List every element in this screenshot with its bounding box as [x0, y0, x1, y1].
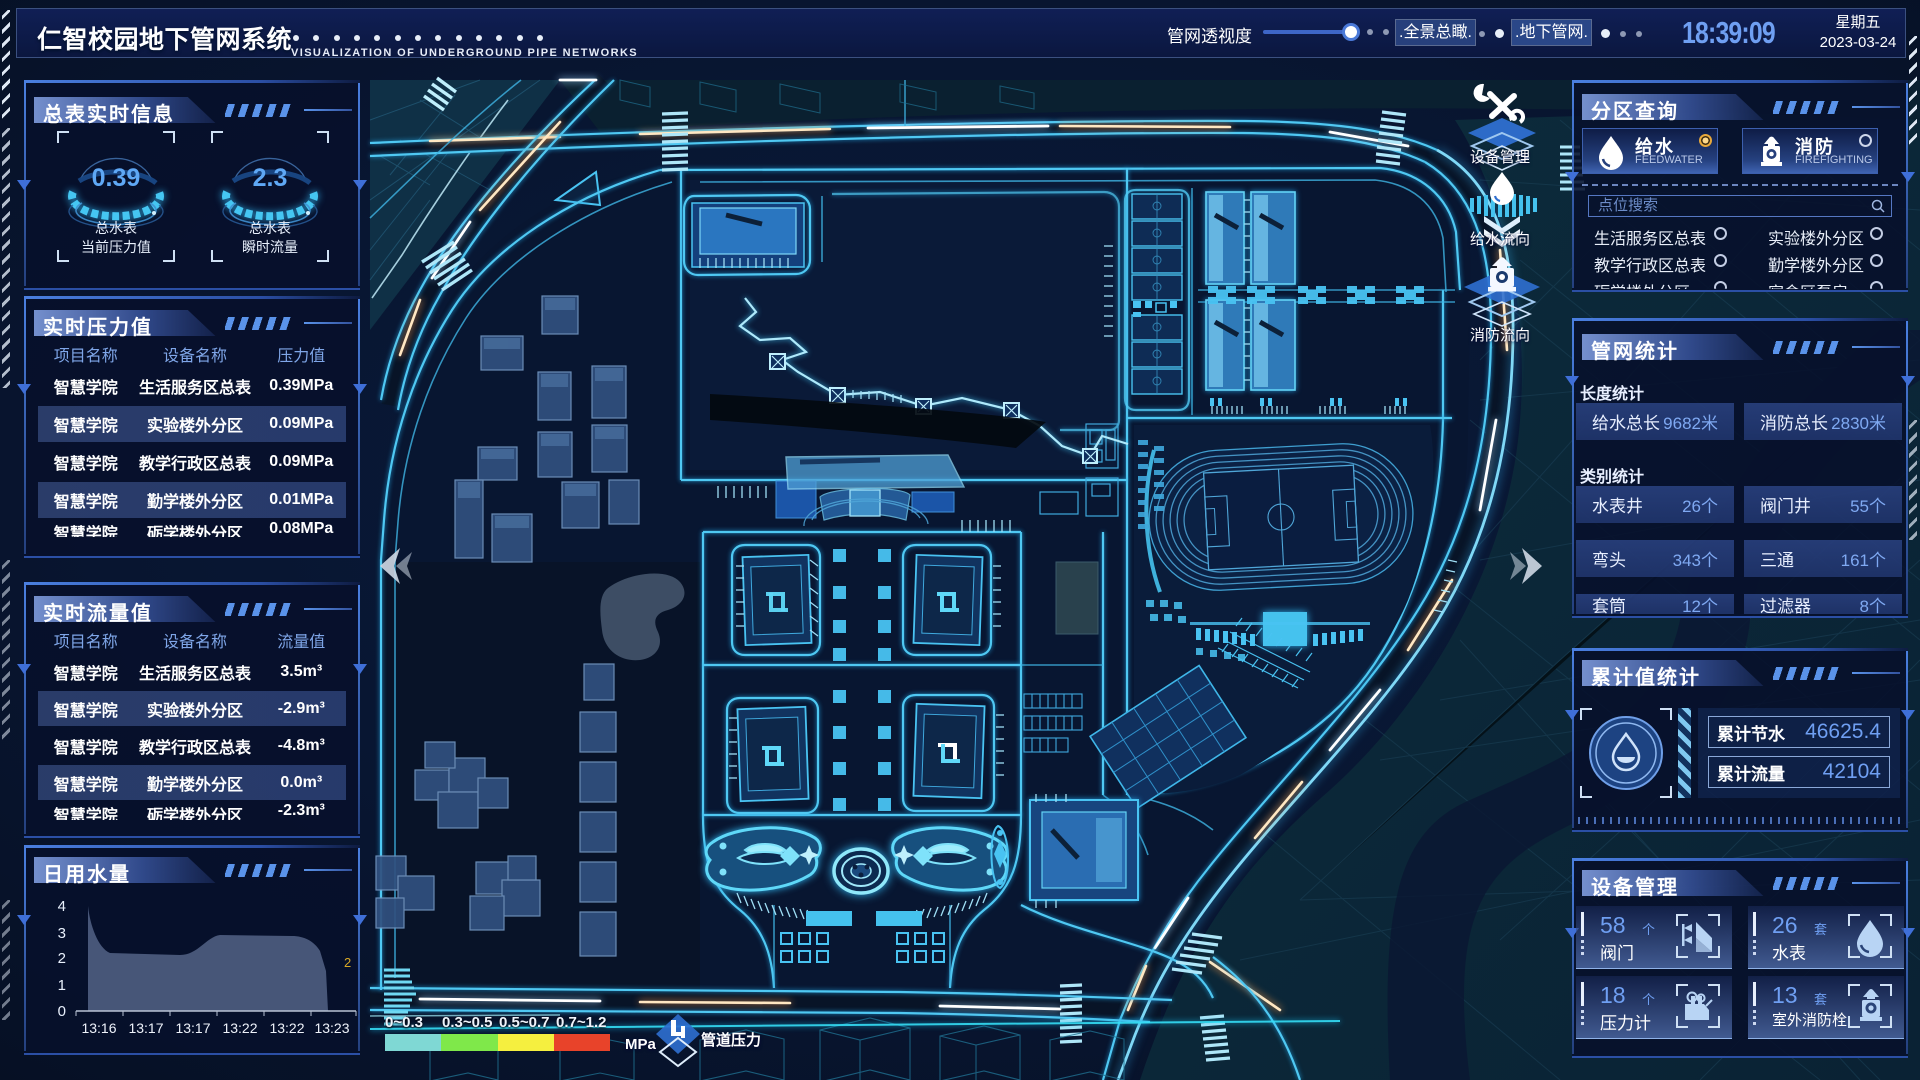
svg-text:13:16: 13:16	[81, 1020, 116, 1036]
svg-text:1: 1	[58, 977, 66, 994]
svg-text:0: 0	[58, 1003, 66, 1020]
svg-text:13:17: 13:17	[128, 1020, 163, 1036]
svg-text:4: 4	[58, 898, 66, 915]
svg-text:13:22: 13:22	[269, 1020, 304, 1036]
svg-text:3: 3	[58, 925, 66, 942]
svg-text:13:22: 13:22	[222, 1020, 257, 1036]
svg-text:2: 2	[58, 950, 66, 967]
svg-text:2: 2	[344, 955, 351, 970]
svg-text:13:23: 13:23	[314, 1020, 349, 1036]
svg-text:13:17: 13:17	[175, 1020, 210, 1036]
